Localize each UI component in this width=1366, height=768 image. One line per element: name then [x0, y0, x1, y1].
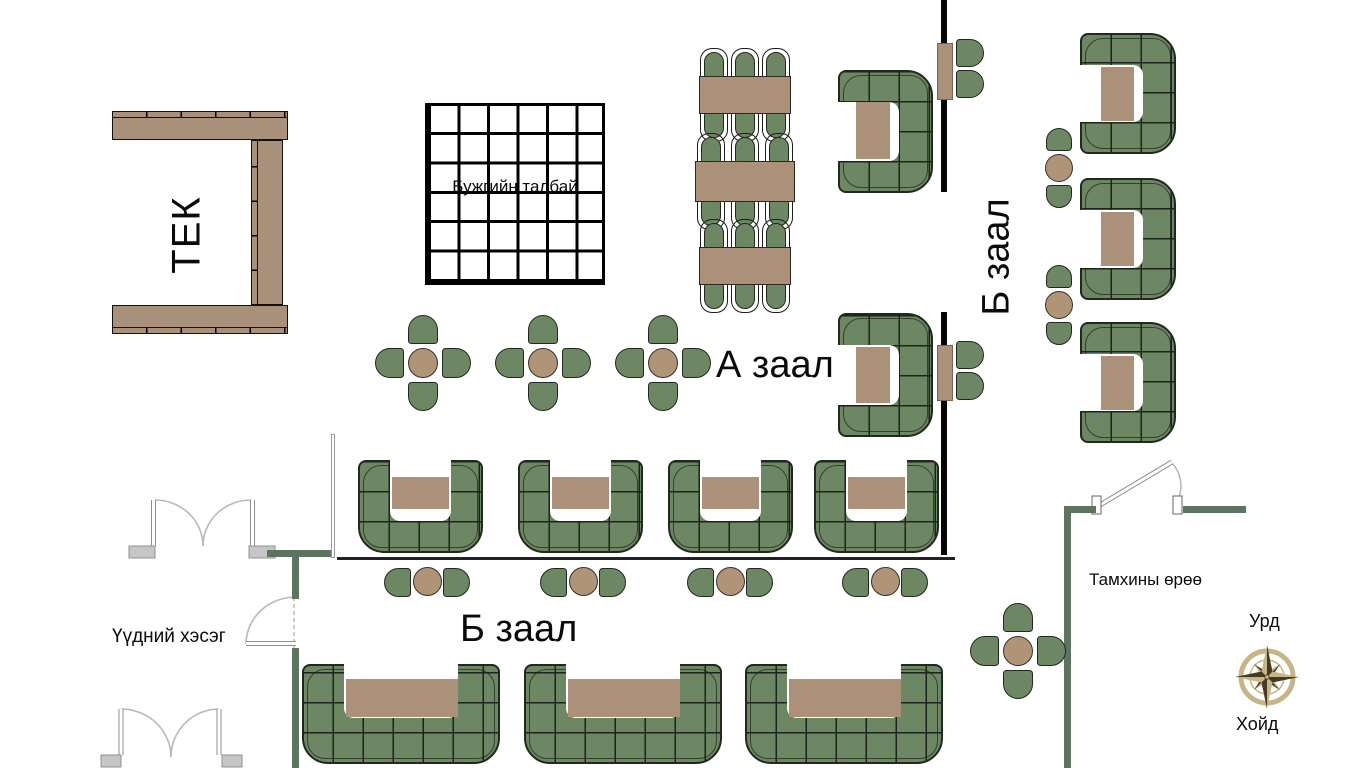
chair: [1046, 128, 1072, 151]
chair: [956, 70, 984, 98]
chair: [1046, 322, 1072, 345]
booth-table: [702, 477, 759, 509]
chair: [1046, 265, 1072, 288]
booth-table: [552, 477, 609, 509]
chair: [704, 223, 724, 249]
restaurant-floor-plan: ТЕК А заал Б заал Б заал Үүдний хэсэг Та…: [0, 0, 1366, 768]
wall: [337, 557, 955, 560]
booth-table: [789, 679, 901, 717]
dining-table: [695, 161, 795, 202]
stage-table: [257, 140, 283, 305]
chair: [443, 568, 470, 597]
round-table: [413, 567, 442, 596]
hall-b-right-label: Б заал: [976, 198, 1019, 315]
round-table: [408, 348, 438, 378]
chair: [766, 223, 786, 249]
chair: [384, 568, 411, 597]
hall-a-label: А заал: [716, 344, 834, 387]
chair: [648, 382, 678, 411]
wall: [292, 557, 299, 599]
wall: [1064, 506, 1071, 768]
wall-table: [937, 43, 953, 100]
chair: [1037, 636, 1066, 666]
stage-label: ТЕК: [165, 196, 210, 273]
round-table: [569, 567, 598, 596]
chair: [648, 315, 678, 344]
chair: [687, 568, 714, 597]
round-table: [648, 348, 678, 378]
compass-icon: [1232, 642, 1302, 712]
wall: [267, 550, 335, 557]
chair: [442, 348, 471, 378]
stage-edge: [251, 140, 258, 305]
chair: [956, 372, 984, 400]
dance-floor: Бужгийн талбай: [425, 103, 605, 285]
booth-table: [346, 679, 458, 717]
booth-table: [848, 477, 905, 509]
chair: [540, 568, 567, 597]
chair: [766, 52, 786, 78]
chair: [735, 52, 755, 78]
chair: [1046, 185, 1072, 208]
wall: [292, 648, 299, 768]
chair: [1003, 603, 1033, 632]
booth-table: [856, 102, 890, 159]
smoking-room-label: Тамхины өрөө: [1089, 570, 1202, 590]
dining-table: [699, 247, 791, 285]
compass-front-label: Урд: [1249, 611, 1280, 632]
wall: [1183, 506, 1246, 513]
booth-table: [1101, 67, 1134, 121]
chair: [704, 52, 724, 78]
chair: [562, 348, 591, 378]
chair: [408, 315, 438, 344]
booth-table: [1101, 212, 1134, 266]
chair: [615, 348, 644, 378]
chair: [901, 568, 928, 597]
chair: [970, 636, 999, 666]
round-table: [1045, 291, 1073, 319]
chair: [842, 568, 869, 597]
round-table: [871, 567, 900, 596]
wall-table: [937, 345, 953, 401]
chair: [701, 137, 721, 163]
chair: [528, 382, 558, 411]
chair: [735, 137, 755, 163]
round-table: [528, 348, 558, 378]
stage-edge: [112, 327, 288, 334]
hall-b-bottom-label: Б заал: [460, 608, 577, 651]
chair: [682, 348, 711, 378]
chair: [704, 283, 724, 309]
chair: [956, 341, 984, 369]
chair: [766, 283, 786, 309]
booth-table: [1101, 356, 1134, 410]
stage-table: [112, 305, 288, 328]
stage-edge: [112, 111, 288, 118]
chair: [746, 568, 773, 597]
round-table: [1003, 636, 1033, 666]
dance-floor-label: Бужгийн талбай: [450, 177, 579, 197]
chair: [599, 568, 626, 597]
chair: [735, 223, 755, 249]
chair: [735, 283, 755, 309]
booth-table: [568, 679, 680, 717]
round-table: [716, 567, 745, 596]
entrance-label: Үүдний хэсэг: [112, 626, 226, 648]
chair: [375, 348, 404, 378]
chair: [1003, 670, 1033, 699]
stage-table: [112, 117, 288, 140]
chair: [408, 382, 438, 411]
chair: [495, 348, 524, 378]
door-post: [1092, 496, 1182, 514]
chair: [769, 137, 789, 163]
round-table: [1045, 154, 1073, 182]
chair: [528, 315, 558, 344]
wall: [331, 434, 335, 558]
booth-table: [856, 347, 890, 403]
door-post: [101, 546, 275, 767]
chair: [956, 39, 984, 67]
dining-table: [699, 76, 791, 114]
compass-back-label: Хойд: [1236, 714, 1278, 735]
booth-table: [392, 477, 449, 509]
